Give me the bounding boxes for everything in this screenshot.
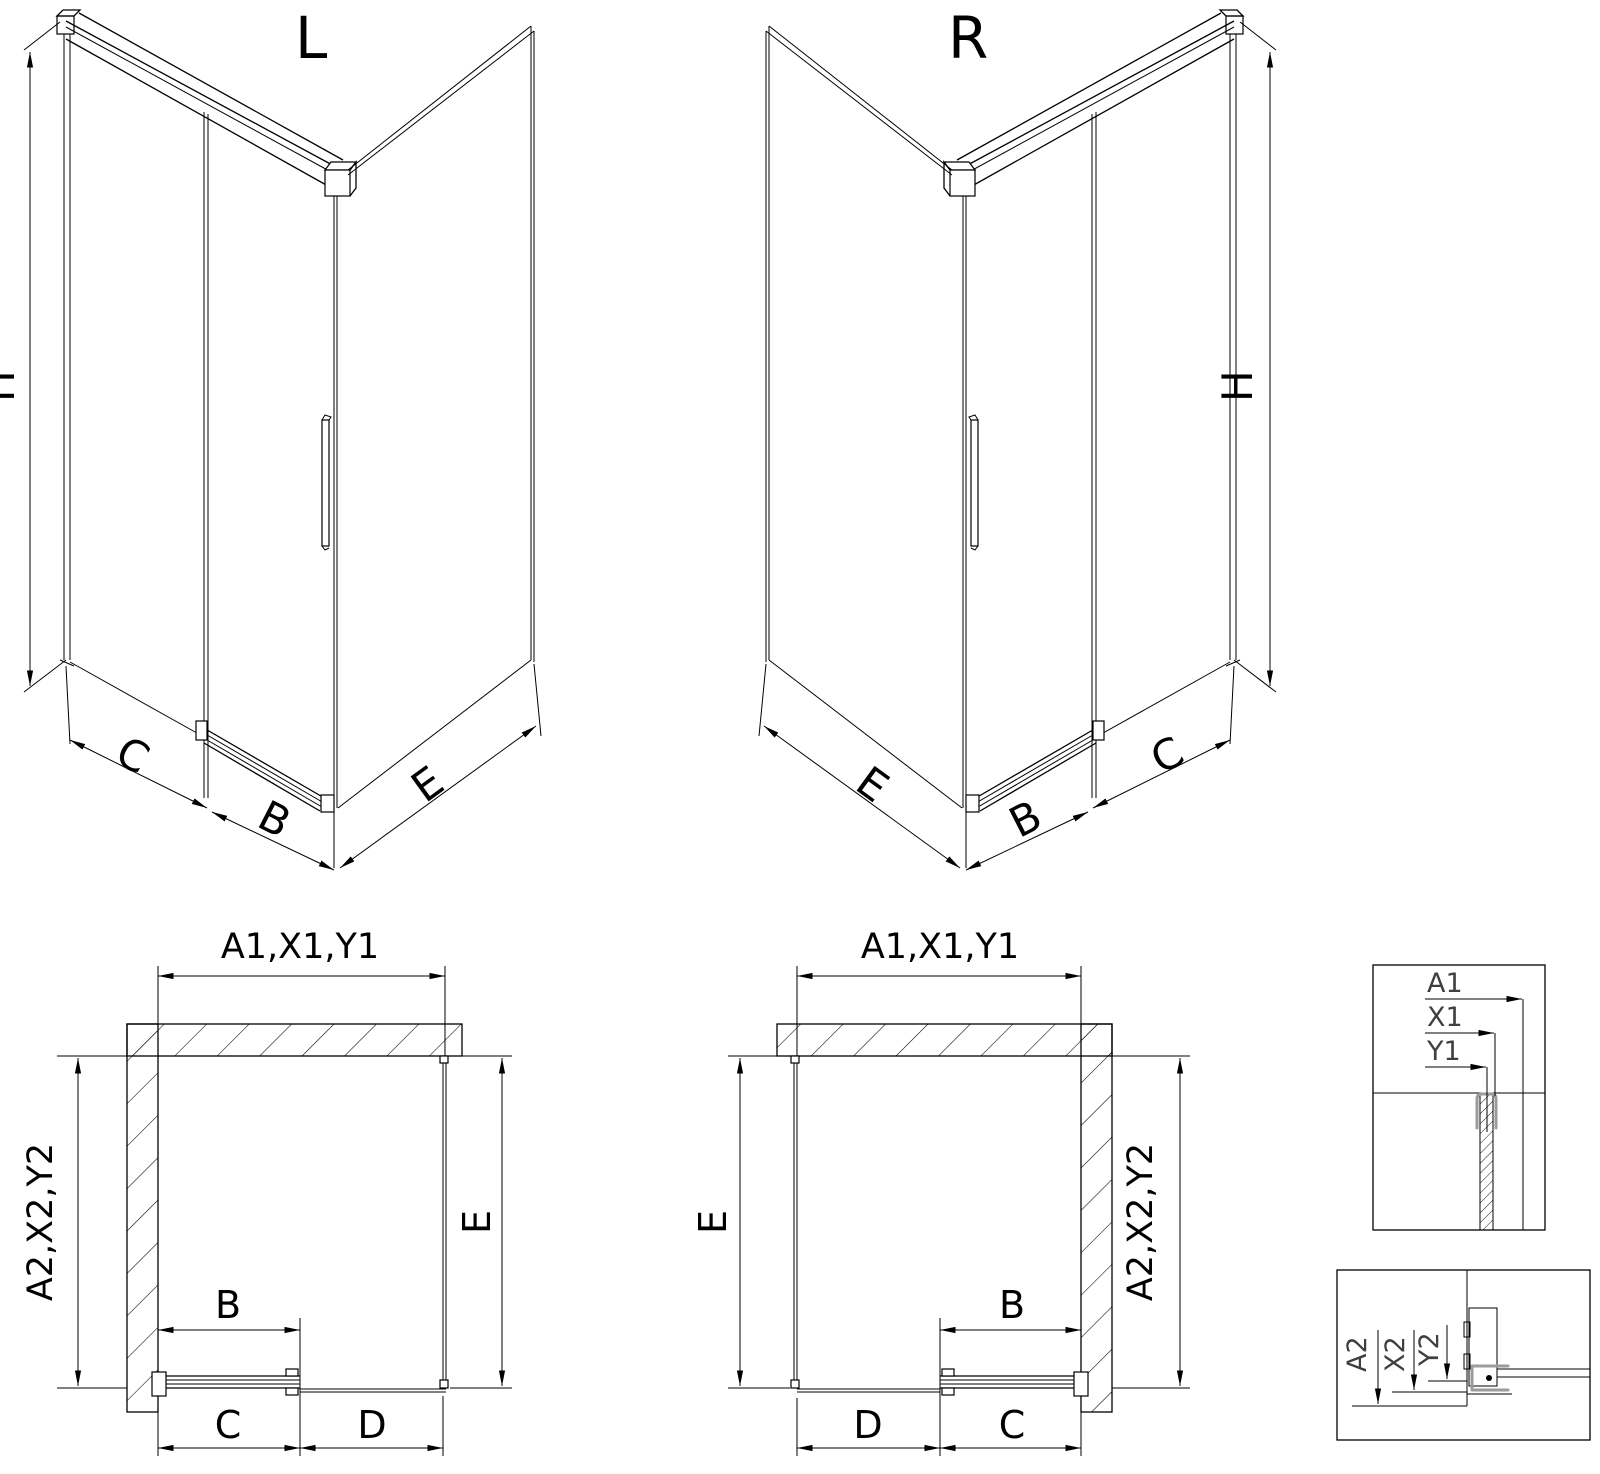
drawing-canvas: L [0, 0, 1600, 1474]
detail-dim-x1: X1 [1427, 1002, 1463, 1033]
plan-l-dim-c: C [215, 1403, 242, 1447]
wall-top-l [127, 1024, 462, 1056]
plan-l-dim-d: D [357, 1403, 386, 1447]
plan-r-dim-c: C [999, 1403, 1026, 1447]
dim-label-h-l: H [0, 370, 24, 402]
detail-dim-y1: Y1 [1426, 1036, 1461, 1067]
detail-dim-a1: A1 [1427, 968, 1463, 999]
shower-enclosure-technical-drawing: L [0, 0, 1600, 1474]
wall-side-l [127, 1024, 158, 1412]
plan-r-dim-b: B [999, 1283, 1025, 1327]
plan-r-right-dim: A2,X2,Y2 [1121, 1143, 1161, 1301]
view-title-l: L [295, 4, 327, 72]
plan-r-dim-d: D [853, 1403, 882, 1447]
plan-r-top-dim: A1,X1,Y1 [861, 927, 1019, 967]
view-title-r: R [948, 4, 988, 72]
wall-top-r [777, 1024, 1112, 1056]
dim-label-h-r: H [1213, 370, 1262, 402]
background [0, 0, 1600, 1474]
roller-dot [1486, 1375, 1492, 1381]
plan-l-dim-e: E [455, 1210, 499, 1234]
plan-l-dim-b: B [215, 1283, 241, 1327]
detail-dim-x2: X2 [1380, 1336, 1411, 1372]
plan-l-top-dim: A1,X1,Y1 [221, 927, 379, 967]
detail-dim-y2: Y2 [1414, 1332, 1445, 1367]
plan-l-left-dim: A2,X2,Y2 [21, 1143, 61, 1301]
detail-dim-a2: A2 [1342, 1336, 1373, 1372]
wall-side-r [1081, 1024, 1112, 1412]
plan-r-dim-e: E [691, 1210, 735, 1234]
